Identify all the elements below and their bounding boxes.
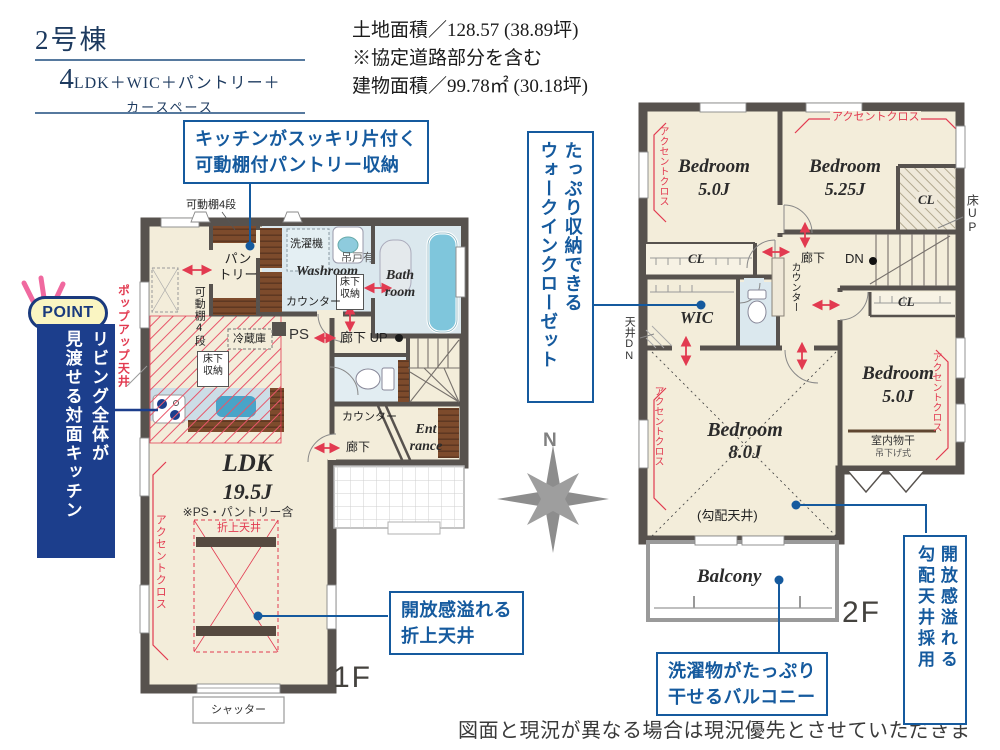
underfloor-storage-2: 床下 収納 [197, 351, 229, 387]
accent-2f-b2: アクセントクロス [830, 111, 921, 124]
ldk-label: LDK 19.5J [200, 449, 295, 505]
pantry-shelf [213, 298, 256, 315]
folded-ceiling-label: 折上天井 [215, 522, 263, 535]
callout-balcony: 洗濯物がたっぷり 干せるバルコニー [656, 652, 828, 716]
ldk-note: ※PS・パントリー含 [178, 505, 298, 519]
washer-label: 洗濯機 [290, 238, 323, 251]
fridge-label: 冷蔵庫 [233, 333, 266, 346]
bathtub-icon [428, 233, 457, 332]
compass-icon [497, 445, 609, 553]
callout-wic: たっぷり収納できる ウォークインクローゼット [527, 131, 594, 403]
sloped-ceiling-label: (勾配天井) [695, 508, 760, 524]
cl3-label: CL [898, 294, 915, 310]
shutter-label: シャッター [193, 704, 284, 717]
floor1-label: 1F [333, 660, 372, 696]
ceiling-dn-label: 天井DN [622, 316, 635, 362]
floor-plan-page: 2号棟 4LDK＋WIC＋パントリー＋ カースペース 土地面積／128.57 (… [0, 0, 1000, 750]
entrance-label: Ent rance [400, 422, 452, 456]
callout-pantry: キッチンがスッキリ片付く 可動棚付パントリー収納 [183, 120, 429, 184]
pantry-label: パン トリー [216, 251, 260, 282]
building-area: 建物面積／99.78㎡ (30.18坪) [352, 73, 588, 101]
cl2-label: CL [916, 192, 937, 208]
dn-label: DN [845, 251, 864, 267]
popup-ceiling-label: ポップアップ天井 [116, 284, 130, 388]
building-title: 2号棟 [35, 24, 109, 56]
hall-counter [772, 258, 784, 316]
counter2-label: カウンター [788, 262, 800, 312]
balcony-label: Balcony [697, 566, 761, 589]
point-feature-box: リビング全体が 見渡せる対面キッチン [37, 324, 115, 558]
bedroom3-label: Bedroom 8.0J [690, 418, 800, 465]
bedroom1-label: Bedroom 5.0J [664, 156, 764, 200]
layout-rooms: LDK＋WIC＋パントリー＋ [74, 75, 281, 92]
layout-count: 4 [59, 63, 74, 95]
toilet-1f-icon [356, 368, 394, 390]
bathroom-label: Bath room [378, 268, 422, 302]
accent-2f-b4: アクセントクロス [929, 352, 941, 432]
header-rule-bottom [35, 112, 305, 114]
land-note: ※協定道路部分を含む [352, 45, 588, 73]
hall2-label: 廊下 [801, 251, 825, 265]
bedroom2-label: Bedroom 5.25J [795, 156, 895, 200]
land-area: 土地面積／128.57 (38.89坪) [352, 17, 588, 45]
counter-wash-label: カウンター [286, 296, 341, 309]
counter-ent-label: カウンター [342, 411, 397, 424]
callout-folded-ceiling: 開放感溢れる 折上天井 [389, 591, 524, 655]
callout-sloped-ceiling: 開放感溢れる 勾配天井採用 [903, 535, 967, 725]
drying-label: 室内物干 吊下げ式 [848, 435, 938, 459]
compass-n-label: N [543, 430, 557, 453]
cl1-label: CL [688, 251, 705, 267]
hall-up-label: 廊下 UP [340, 330, 388, 346]
layout-summary: 4LDK＋WIC＋パントリー＋ カースペース [35, 62, 305, 115]
accent-1f-label: アクセントクロス [153, 514, 166, 610]
shelf-top-label: 可動棚4段 [186, 199, 236, 212]
hall-label: 廊下 [346, 440, 370, 454]
toilet-2f-icon [748, 290, 766, 323]
area-info: 土地面積／128.57 (38.89坪) ※協定道路部分を含む 建物面積／99.… [352, 17, 588, 101]
accent-2f-b1: アクセントクロス [656, 126, 668, 206]
shelf-side-label: 可動棚4段 [192, 286, 205, 347]
floor2-label: 2F [842, 595, 881, 631]
pipe-space [272, 322, 286, 336]
accent-2f-b3: アクセントクロス [651, 386, 663, 466]
header-rule-top [35, 59, 305, 61]
ps-label: PS [289, 326, 309, 344]
floor-up-label: 床UP [965, 194, 979, 234]
wic-label: WIC [680, 308, 713, 328]
